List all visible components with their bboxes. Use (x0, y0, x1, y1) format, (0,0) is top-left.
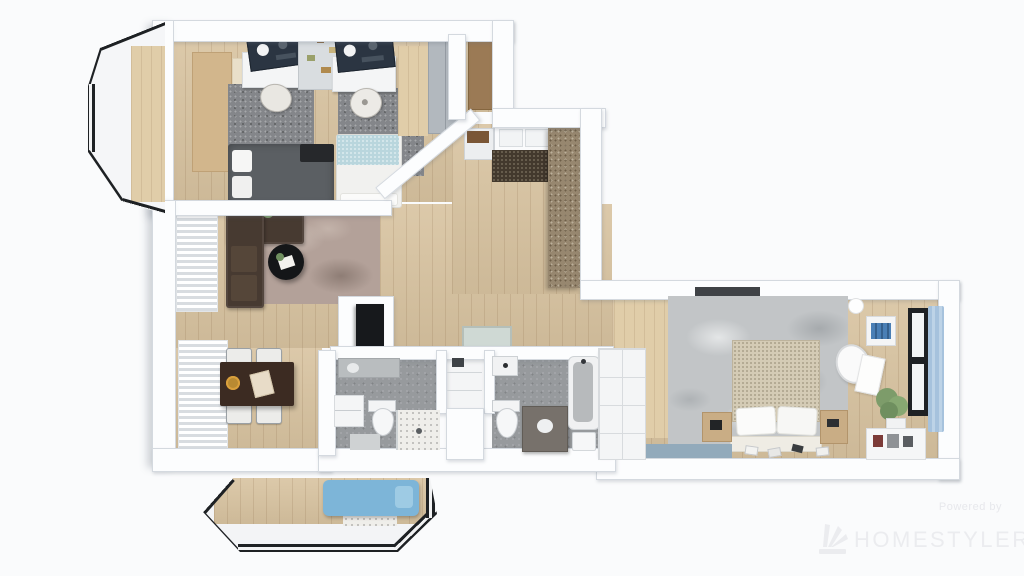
pegboard-clock (343, 44, 356, 57)
wall-wing-bottom (596, 458, 960, 480)
nook-shelf (866, 316, 896, 346)
homestyler-fan-icon (816, 518, 852, 558)
bath-stool (572, 432, 596, 451)
shelf-item (307, 55, 315, 61)
shower-drain (416, 428, 422, 434)
bay-window-bar (86, 84, 95, 152)
entry-doormat (492, 150, 548, 182)
watermark-brand: HOMESTYLER (854, 527, 1024, 553)
shower-pan (396, 410, 440, 450)
kids-wood-strip (398, 46, 428, 136)
door-glass-pane (525, 129, 549, 147)
bed-blanket-fold (300, 144, 334, 162)
pegboard-tray (362, 55, 384, 62)
framed-photo (903, 436, 913, 447)
bath-sink (347, 363, 359, 373)
pegboard-dot (368, 41, 378, 51)
bath-left-counter (338, 358, 400, 378)
bath-right-sink (492, 356, 518, 376)
entry-wardrobe (548, 128, 580, 288)
vanity-sink (537, 419, 553, 433)
kids-bed-dark (228, 144, 334, 206)
bench-cushion (467, 131, 489, 143)
kids-wardrobe-tan (192, 52, 232, 172)
wall-left-main (152, 200, 176, 464)
magazine (744, 445, 758, 456)
vanity-cabinet (522, 406, 568, 452)
chair-hub (361, 99, 368, 106)
window-pane (912, 313, 924, 357)
master-bed (732, 340, 820, 422)
nightstand-right (820, 410, 848, 444)
dining-table (220, 362, 294, 406)
framed-photo (887, 434, 899, 448)
shelf-item (321, 67, 331, 73)
wall-kids-right (448, 34, 466, 120)
wall-niche-mid (446, 408, 484, 460)
fruit-plate (226, 376, 240, 390)
storage-niche-floor (444, 352, 487, 412)
magazine (816, 446, 830, 456)
coffee-table (268, 244, 304, 280)
living-curtain-panel (176, 214, 218, 312)
shelf-line (335, 410, 361, 411)
nightstand-item (827, 419, 839, 427)
wall-bottom-left (152, 448, 332, 472)
niche-item (452, 358, 464, 367)
entry-bench (464, 128, 494, 160)
pendant-lamp (848, 298, 864, 314)
pegboard-tray (276, 52, 297, 60)
niche-shelf-line (447, 390, 482, 391)
pegboard-clock (256, 43, 270, 57)
sink-faucet (503, 363, 508, 368)
coffee-table-plant (276, 253, 284, 261)
bath-left-shelf (334, 395, 364, 427)
sofa-cushion (231, 275, 257, 301)
door-glass-pane (499, 129, 523, 147)
sofa-left-arm (226, 212, 264, 308)
bed-pillow (735, 406, 776, 436)
bedroom-bookcase-left (598, 348, 646, 460)
watermark-powered-by: Powered by (870, 501, 1002, 513)
bay-window-bar (82, 45, 103, 86)
bed-pillow (232, 150, 252, 172)
bay-window-bar (82, 150, 123, 205)
bath-mat (350, 434, 380, 450)
bed-pillow (776, 406, 817, 436)
wall-vestibule-right (492, 20, 514, 122)
entry-door-glass (494, 124, 554, 152)
lounge-pillow (395, 486, 413, 508)
tub-faucet (581, 359, 586, 364)
nightstand-item (710, 420, 722, 430)
bay-window (85, 20, 167, 216)
bathtub (568, 356, 600, 430)
wall-entry-right (580, 108, 602, 296)
bedroom-rug-blue (646, 444, 732, 458)
bedroom-tv-bar (695, 287, 760, 296)
bedroom-curtain (928, 306, 944, 432)
nightstand-left (702, 412, 732, 442)
wardrobe-divider (445, 41, 446, 131)
balcony-window-bar (426, 478, 435, 518)
niche-shelf-line (447, 372, 482, 373)
balcony-window-bar (238, 544, 400, 553)
shelf-books-blue (871, 323, 891, 339)
balcony (200, 478, 440, 558)
bed-blanket-teal (337, 135, 399, 165)
bedroom-window-frame (908, 308, 928, 416)
bay-floor (131, 46, 165, 202)
bed-pillow (232, 176, 252, 198)
bedroom-cabinet-br (866, 428, 926, 460)
kids-bed-white (336, 134, 402, 208)
bathtub-basin (573, 362, 593, 422)
window-pane (912, 364, 924, 410)
balcony-lounge (323, 480, 419, 516)
floorplan-render-canvas: Powered by HOMESTYLER (0, 0, 1024, 576)
dining-chair (256, 404, 282, 424)
wall-kids-bottom (152, 200, 392, 216)
framed-photo (873, 435, 883, 447)
dining-chair (226, 404, 252, 424)
wall-niche-left (436, 350, 447, 414)
table-paper (249, 370, 274, 398)
sofa-cushion (231, 246, 257, 272)
